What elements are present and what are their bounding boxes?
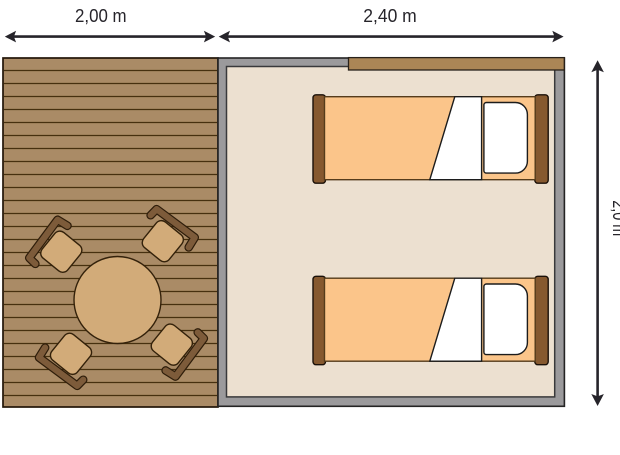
svg-text:2,00 m: 2,00 m	[75, 5, 127, 26]
svg-text:2,0 m: 2,0 m	[609, 200, 620, 236]
svg-text:2,40 m: 2,40 m	[363, 5, 417, 26]
